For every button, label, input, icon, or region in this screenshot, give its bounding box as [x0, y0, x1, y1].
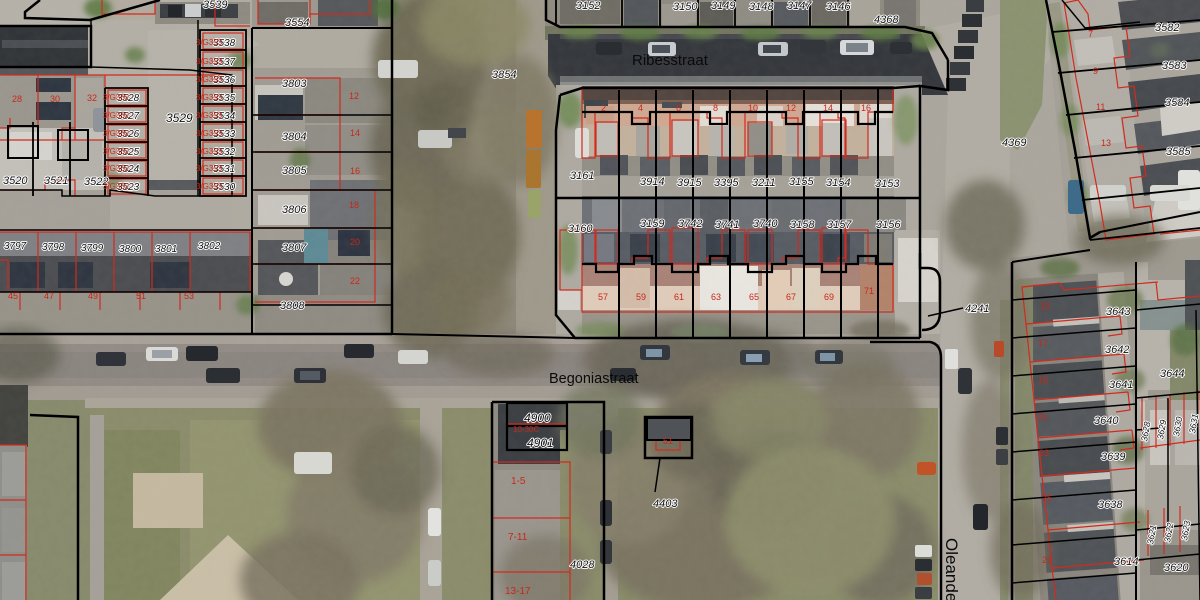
svg-text:3161: 3161	[570, 170, 594, 182]
svg-text:6: 6	[676, 103, 681, 113]
svg-text:3149: 3149	[711, 0, 735, 12]
svg-text:21: 21	[1038, 412, 1048, 422]
svg-text:1-5: 1-5	[511, 476, 526, 487]
svg-text:3741: 3741	[715, 219, 739, 231]
svg-text:67: 67	[786, 292, 796, 302]
svg-text:53: 53	[184, 291, 194, 301]
svg-text:3641: 3641	[1109, 379, 1133, 391]
svg-text:2: 2	[601, 103, 606, 113]
svg-text:51: 51	[136, 291, 146, 301]
svg-text:3798: 3798	[42, 242, 65, 253]
svg-text:13-17: 13-17	[505, 586, 531, 597]
svg-text:3152: 3152	[576, 0, 600, 12]
svg-text:3800: 3800	[119, 244, 142, 255]
svg-text:9: 9	[1093, 66, 1098, 76]
svg-text:3395: 3395	[714, 177, 739, 189]
svg-text:3/G353: 3/G353	[196, 38, 223, 47]
svg-text:3147: 3147	[787, 0, 812, 12]
svg-text:3157: 3157	[827, 219, 852, 231]
svg-text:3639: 3639	[1101, 451, 1125, 463]
svg-text:3153: 3153	[875, 178, 900, 190]
svg-text:3156: 3156	[876, 219, 901, 231]
svg-text:4901: 4901	[527, 436, 554, 450]
svg-text:3/G353: 3/G353	[196, 129, 223, 138]
svg-text:3804: 3804	[282, 131, 306, 143]
svg-text:3801: 3801	[155, 244, 177, 255]
svg-text:3740: 3740	[753, 218, 778, 230]
svg-text:3805: 3805	[282, 165, 307, 177]
svg-text:3/G352: 3/G352	[103, 164, 130, 173]
svg-text:30: 30	[50, 94, 60, 104]
svg-text:3583: 3583	[1162, 60, 1187, 72]
svg-text:3/G352: 3/G352	[103, 129, 130, 138]
svg-text:12: 12	[349, 91, 359, 101]
svg-text:4028: 4028	[570, 559, 595, 571]
svg-text:3854: 3854	[492, 69, 516, 81]
svg-text:3585: 3585	[1166, 146, 1191, 158]
svg-text:13: 13	[1101, 138, 1111, 148]
svg-text:3211: 3211	[752, 177, 776, 189]
svg-text:3/G353: 3/G353	[196, 147, 223, 156]
svg-text:3154: 3154	[826, 177, 850, 189]
svg-text:10-30C: 10-30C	[513, 425, 539, 434]
svg-text:4: 4	[638, 103, 643, 113]
svg-text:20: 20	[350, 237, 360, 247]
svg-text:3155: 3155	[789, 176, 814, 188]
svg-text:3529: 3529	[166, 111, 193, 125]
svg-text:3742: 3742	[678, 218, 702, 230]
svg-text:25: 25	[1042, 493, 1052, 503]
svg-text:4403: 4403	[653, 498, 678, 510]
svg-text:3807: 3807	[282, 242, 307, 254]
svg-text:3521: 3521	[44, 175, 68, 187]
svg-text:3160: 3160	[568, 223, 593, 235]
svg-text:61: 61	[674, 292, 684, 302]
svg-text:14: 14	[823, 103, 833, 113]
svg-text:14: 14	[350, 128, 360, 138]
svg-text:8: 8	[713, 103, 718, 113]
svg-text:47: 47	[44, 291, 54, 301]
svg-text:15: 15	[1040, 301, 1050, 311]
svg-text:29: 29	[1042, 555, 1052, 565]
svg-text:3584: 3584	[1165, 97, 1189, 109]
svg-text:3808: 3808	[280, 300, 305, 312]
svg-text:3/G353: 3/G353	[196, 111, 223, 120]
svg-text:3802: 3802	[198, 241, 221, 252]
svg-text:32: 32	[87, 93, 97, 103]
svg-text:3159: 3159	[640, 218, 664, 230]
svg-text:3554: 3554	[285, 17, 309, 29]
svg-text:16: 16	[350, 166, 360, 176]
svg-text:3638: 3638	[1098, 499, 1123, 511]
svg-text:22: 22	[350, 276, 360, 286]
svg-text:3148: 3148	[749, 1, 774, 13]
svg-text:59: 59	[636, 292, 646, 302]
svg-text:11: 11	[1096, 102, 1105, 112]
svg-text:7-11: 7-11	[508, 532, 528, 543]
svg-text:3/G352: 3/G352	[103, 111, 130, 120]
svg-text:3620: 3620	[1164, 562, 1189, 574]
svg-text:28: 28	[12, 94, 22, 104]
svg-text:16: 16	[861, 103, 871, 113]
svg-text:3/G352: 3/G352	[103, 147, 130, 156]
svg-text:65: 65	[749, 292, 759, 302]
svg-text:3644: 3644	[1160, 368, 1184, 380]
svg-text:3/G352: 3/G352	[103, 182, 130, 191]
svg-text:51: 51	[663, 436, 673, 446]
svg-text:3/G352: 3/G352	[103, 93, 130, 102]
svg-text:3150: 3150	[673, 1, 698, 13]
svg-text:49: 49	[88, 291, 98, 301]
svg-text:3/G353: 3/G353	[196, 182, 223, 191]
svg-text:7: 7	[1088, 29, 1093, 39]
svg-text:4900: 4900	[524, 411, 551, 425]
svg-text:3/G353: 3/G353	[196, 57, 223, 66]
svg-text:4241: 4241	[965, 303, 989, 315]
svg-text:3797: 3797	[4, 241, 27, 252]
svg-text:71: 71	[864, 286, 874, 296]
svg-text:3643: 3643	[1106, 306, 1131, 318]
svg-text:3799: 3799	[81, 243, 104, 254]
svg-text:3642: 3642	[1105, 344, 1129, 356]
svg-text:17: 17	[1038, 338, 1048, 348]
svg-text:3539: 3539	[203, 0, 227, 11]
svg-text:3915: 3915	[677, 177, 702, 189]
svg-text:Ribesstraat: Ribesstraat	[632, 52, 709, 69]
svg-text:3146: 3146	[826, 1, 851, 13]
svg-text:4368: 4368	[874, 14, 899, 26]
svg-text:63: 63	[711, 292, 721, 302]
svg-text:3914: 3914	[640, 176, 664, 188]
svg-text:69: 69	[824, 292, 834, 302]
svg-text:18: 18	[349, 200, 359, 210]
svg-text:3614: 3614	[1114, 556, 1138, 568]
svg-text:3520: 3520	[3, 175, 28, 187]
svg-text:3/G353: 3/G353	[196, 164, 223, 173]
svg-text:23: 23	[1039, 448, 1049, 458]
svg-text:3158: 3158	[790, 219, 815, 231]
svg-text:12: 12	[786, 103, 796, 113]
svg-text:57: 57	[598, 292, 608, 302]
svg-text:3806: 3806	[282, 204, 307, 216]
svg-text:4369: 4369	[1002, 137, 1026, 149]
svg-text:3582: 3582	[1155, 22, 1179, 34]
svg-text:45: 45	[8, 291, 18, 301]
svg-text:Oleander: Oleander	[942, 538, 961, 600]
svg-text:19: 19	[1038, 375, 1048, 385]
svg-text:10: 10	[748, 103, 758, 113]
svg-text:3803: 3803	[282, 78, 307, 90]
svg-text:Begoniastraat: Begoniastraat	[549, 371, 638, 387]
svg-text:3/G353: 3/G353	[196, 93, 223, 102]
svg-text:3640: 3640	[1094, 415, 1119, 427]
svg-text:3/G353: 3/G353	[196, 75, 223, 84]
